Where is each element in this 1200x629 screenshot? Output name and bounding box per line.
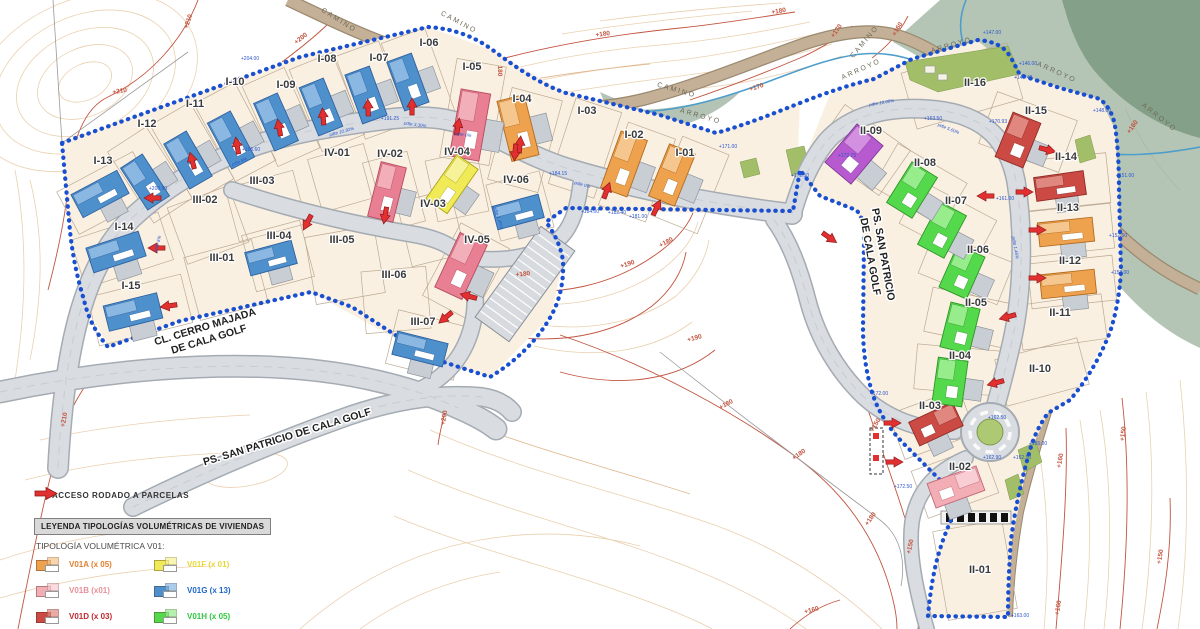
roundabout: [961, 403, 1019, 461]
plot-label-I-01: I-01: [676, 147, 695, 159]
plot-label-III-05: III-05: [329, 234, 354, 246]
plot-label-I-06: I-06: [420, 37, 439, 49]
elevation-label: +170.93: [989, 119, 1007, 125]
plot-label-III-04: III-04: [266, 230, 292, 242]
elevation-label: +191.25: [381, 116, 399, 122]
elevation-label: +151.00: [1116, 173, 1134, 179]
acceso-label: ACCESO RODADO A PARCELAS: [52, 491, 189, 500]
plot-label-I-03: I-03: [578, 105, 597, 117]
site-plan-page: +210+210+210+210+200+200+180+180+170+170…: [0, 0, 1200, 629]
plot-label-I-05: I-05: [463, 61, 482, 73]
legend-grid: V01A (x 05)V01F (x 01)V01B (x01)V01G (x …: [36, 556, 294, 629]
plot-label-III-07: III-07: [410, 316, 435, 328]
contour-label: +180: [515, 270, 531, 278]
legend-label-V01A: V01A (x 05): [69, 560, 112, 569]
elevation-label: +162.50: [988, 415, 1006, 421]
plot-label-I-10: I-10: [226, 76, 245, 88]
elevation-label: +145.40: [1014, 75, 1032, 81]
acceso-row: ACCESO RODADO A PARCELAS: [52, 487, 294, 503]
typology-icon-V01G: [154, 583, 180, 598]
legend-item-V01A: V01A (x 05): [36, 556, 154, 572]
plot-label-I-04: I-04: [513, 93, 533, 105]
plot-label-II-09: II-09: [860, 125, 882, 137]
plot-label-II-11: II-11: [1049, 307, 1070, 319]
legend-item-V01H: V01H (x 05): [154, 608, 272, 624]
plot-label-I-14: I-14: [115, 221, 135, 233]
plot-label-IV-03: IV-03: [420, 198, 446, 210]
elevation-label: +182.40: [608, 210, 626, 216]
plot-label-II-12: II-12: [1059, 255, 1081, 267]
elevation-label: +196.60: [242, 147, 260, 153]
elevation-label: +172.50: [791, 173, 809, 179]
legend-label-V01D: V01D (x 03): [69, 612, 112, 621]
elevation-label: +172.50: [894, 484, 912, 490]
plot-label-II-05: II-05: [965, 297, 987, 309]
plot-label-II-10: II-10: [1029, 363, 1051, 375]
plot-label-II-06: II-06: [967, 244, 989, 256]
plot-label-IV-06: IV-06: [503, 174, 529, 186]
access-arrow-icon: [34, 487, 58, 500]
elevation-label: +162.50: [1013, 455, 1031, 461]
plot-label-II-14: II-14: [1055, 151, 1078, 163]
plot-label-III-03: III-03: [249, 175, 274, 187]
elevation-label: +162.90: [983, 455, 1001, 461]
elevation-label: +148.00: [1093, 108, 1111, 114]
plot-label-I-12: I-12: [138, 118, 157, 130]
elevation-label: +165.00: [1029, 441, 1047, 447]
plot-label-II-03: II-03: [919, 400, 941, 412]
elevation-label: +184.15: [549, 171, 567, 177]
plot-label-III-01: III-01: [209, 252, 234, 264]
plot-label-II-01: II-01: [969, 564, 991, 576]
legend-label-V01B: V01B (x01): [69, 586, 110, 595]
legend-subtitle: TIPOLOGÍA VOLUMÉTRICA V01:: [36, 541, 294, 551]
legend-item-V01F: V01F (x 01): [154, 556, 272, 572]
plot-label-I-08: I-08: [318, 53, 337, 65]
plot-label-I-02: I-02: [625, 129, 644, 141]
plot-label-II-15: II-15: [1025, 105, 1047, 117]
road-bay-structure: [870, 428, 883, 474]
plot-label-III-02: III-02: [192, 194, 217, 206]
plot-label-I-07: I-07: [370, 52, 389, 64]
contour-label: 180: [496, 66, 503, 77]
elevation-label: +172.75: [838, 153, 856, 159]
plot-label-IV-04: IV-04: [444, 146, 471, 158]
elevation-label: +152.50: [1109, 233, 1127, 239]
legend-label-V01F: V01F (x 01): [187, 560, 229, 569]
plot-label-IV-01: IV-01: [324, 147, 350, 159]
plot-label-I-11: I-11: [186, 98, 204, 110]
typology-icon-V01A: [36, 557, 62, 572]
plot-label-II-07: II-07: [945, 195, 967, 207]
plot-label-I-13: I-13: [94, 155, 113, 167]
typology-icon-V01B: [36, 583, 62, 598]
plot-label-I-09: I-09: [277, 79, 296, 91]
legend-item-V01D: V01D (x 03): [36, 608, 154, 624]
legend-item-V01G: V01G (x 13): [154, 582, 272, 598]
legend-label-V01H: V01H (x 05): [187, 612, 230, 621]
plot-label-III-06: III-06: [381, 269, 406, 281]
elevation-label: +172.00: [870, 391, 888, 397]
elevation-label: +147.00: [983, 30, 1001, 36]
legend-title: LEYENDA TIPOLOGÍAS VOLUMÉTRICAS DE VIVIE…: [34, 518, 271, 535]
elevation-label: +181.00: [629, 214, 647, 220]
plot-label-IV-05: IV-05: [464, 234, 490, 246]
typology-icon-V01D: [36, 609, 62, 624]
plot-label-II-16: II-16: [964, 77, 986, 89]
elevation-label: +163.00: [1011, 613, 1029, 619]
elevation-label: +161.00: [996, 196, 1014, 202]
elevation-label: +184.00: [581, 209, 599, 215]
legend-item-V01B: V01B (x01): [36, 582, 154, 598]
plot-label-II-02: II-02: [949, 461, 971, 473]
elevation-label: +152.00: [1111, 270, 1129, 276]
typology-icon-V01H: [154, 609, 180, 624]
legend-label-V01G: V01G (x 13): [187, 586, 231, 595]
plot-label-II-13: II-13: [1057, 202, 1079, 214]
legend: ACCESO RODADO A PARCELAS LEYENDA TIPOLOG…: [34, 487, 294, 629]
elevation-label: +163.50: [924, 116, 942, 122]
elevation-label: +146.00: [1019, 61, 1037, 67]
plot-label-IV-02: IV-02: [377, 148, 403, 160]
typology-icon-V01F: [154, 557, 180, 572]
elevation-label: +204.00: [241, 56, 259, 62]
elevation-label: +171.00: [719, 144, 737, 150]
plot-label-I-15: I-15: [122, 280, 141, 292]
plot-label-II-08: II-08: [914, 157, 936, 169]
plot-label-II-04: II-04: [949, 350, 972, 362]
elevation-label: +200.50: [149, 186, 167, 192]
